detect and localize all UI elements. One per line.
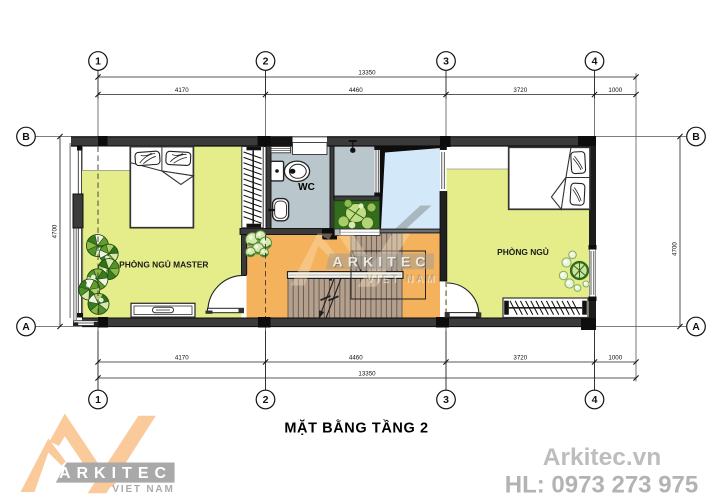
- svg-text:4460: 4460: [349, 355, 363, 362]
- svg-text:3720: 3720: [513, 87, 527, 94]
- svg-text:4170: 4170: [175, 355, 189, 362]
- svg-text:PHÒNG NGỦ: PHÒNG NGỦ: [497, 246, 549, 257]
- svg-text:B: B: [22, 131, 30, 143]
- svg-text:4: 4: [592, 56, 598, 68]
- svg-text:VIET NAM: VIET NAM: [112, 484, 174, 495]
- svg-text:13350: 13350: [358, 371, 376, 378]
- svg-text:3: 3: [443, 394, 449, 406]
- svg-text:13350: 13350: [358, 70, 376, 77]
- svg-text:4460: 4460: [349, 87, 363, 94]
- svg-text:B: B: [692, 131, 700, 143]
- svg-text:4700: 4700: [52, 224, 59, 238]
- svg-text:A: A: [692, 321, 700, 333]
- svg-text:ARKITEC: ARKITEC: [332, 255, 430, 271]
- svg-text:3: 3: [443, 56, 449, 68]
- svg-text:3720: 3720: [513, 355, 527, 362]
- svg-text:1: 1: [95, 394, 101, 406]
- svg-text:PHÒNG NGỦ MASTER: PHÒNG NGỦ MASTER: [119, 259, 208, 270]
- svg-text:4700: 4700: [672, 242, 679, 256]
- svg-text:HL: 0973 273 975: HL: 0973 273 975: [505, 472, 698, 499]
- svg-text:2: 2: [263, 394, 269, 406]
- svg-text:WC: WC: [298, 182, 315, 193]
- svg-text:1000: 1000: [608, 87, 622, 94]
- svg-text:A: A: [22, 321, 30, 333]
- svg-text:MẶT BẰNG TẦNG 2: MẶT BẰNG TẦNG 2: [284, 419, 428, 437]
- svg-text:VIET NAM: VIET NAM: [366, 274, 437, 285]
- svg-text:1: 1: [95, 56, 101, 68]
- svg-text:1000: 1000: [608, 355, 622, 362]
- svg-text:4170: 4170: [175, 87, 189, 94]
- svg-text:2: 2: [263, 56, 269, 68]
- svg-text:ARKITEC: ARKITEC: [59, 465, 172, 482]
- svg-text:Arkitec.vn: Arkitec.vn: [543, 444, 661, 471]
- svg-text:4: 4: [592, 394, 598, 406]
